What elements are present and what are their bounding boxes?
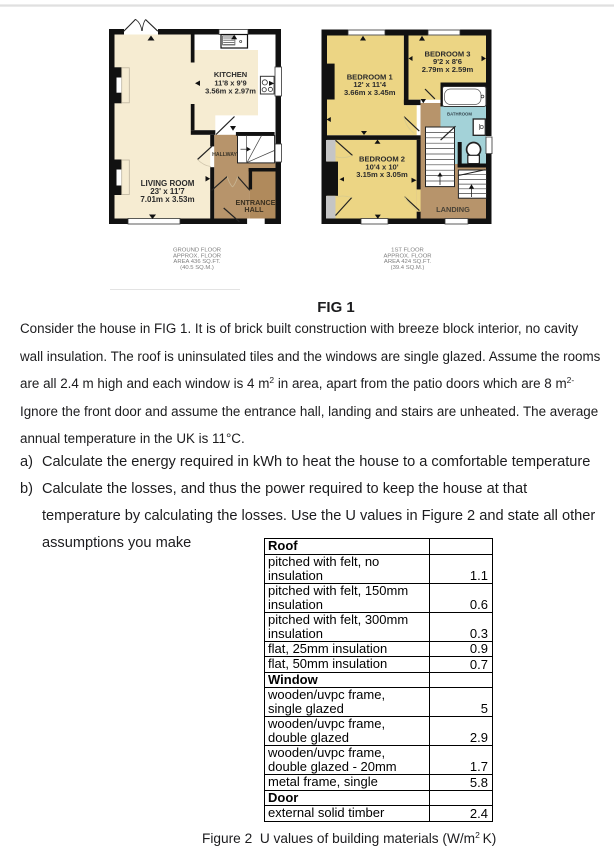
svg-text:HALL: HALL xyxy=(244,205,264,214)
svg-text:(40.5 SQ.M.): (40.5 SQ.M.) xyxy=(180,265,214,271)
svg-text:3.15m x 3.05m: 3.15m x 3.05m xyxy=(356,170,408,179)
svg-text:2.79m x 2.59m: 2.79m x 2.59m xyxy=(422,65,474,74)
svg-text:LANDING: LANDING xyxy=(436,205,470,214)
svg-text:3.56m x 2.97m: 3.56m x 2.97m xyxy=(205,87,256,96)
svg-text:7.01m x 3.53m: 7.01m x 3.53m xyxy=(140,195,194,204)
svg-text:BATHROOM: BATHROOM xyxy=(447,111,472,116)
svg-text:HALLWAY: HALLWAY xyxy=(212,152,237,158)
svg-text:3.66m x 3.45m: 3.66m x 3.45m xyxy=(344,88,396,97)
svg-text:(39.4 SQ.M.): (39.4 SQ.M.) xyxy=(391,265,425,271)
